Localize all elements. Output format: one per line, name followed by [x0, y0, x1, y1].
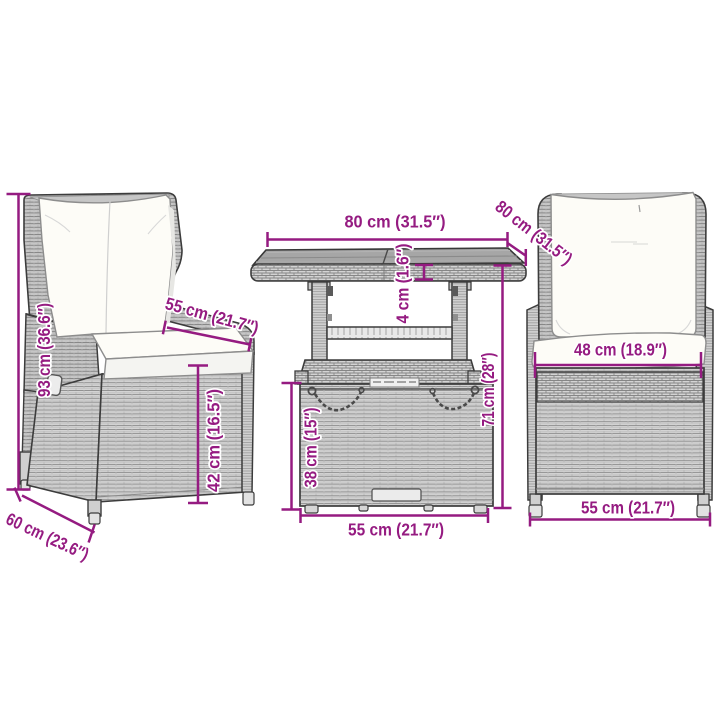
svg-text:55 cm (21.7″): 55 cm (21.7″) — [348, 520, 444, 540]
svg-text:38 cm (15″): 38 cm (15″) — [301, 408, 321, 488]
svg-text:42 cm (16.5″): 42 cm (16.5″) — [204, 389, 224, 492]
svg-text:4 cm (1.6″): 4 cm (1.6″) — [393, 244, 413, 324]
svg-text:71 cm (28″): 71 cm (28″) — [478, 353, 498, 427]
svg-text:48 cm (18.9″): 48 cm (18.9″) — [574, 340, 667, 360]
svg-text:80 cm (31.5″): 80 cm (31.5″) — [345, 212, 446, 232]
svg-text:93 cm (36.6″): 93 cm (36.6″) — [34, 303, 54, 397]
svg-text:55 cm (21.7″): 55 cm (21.7″) — [581, 498, 675, 518]
